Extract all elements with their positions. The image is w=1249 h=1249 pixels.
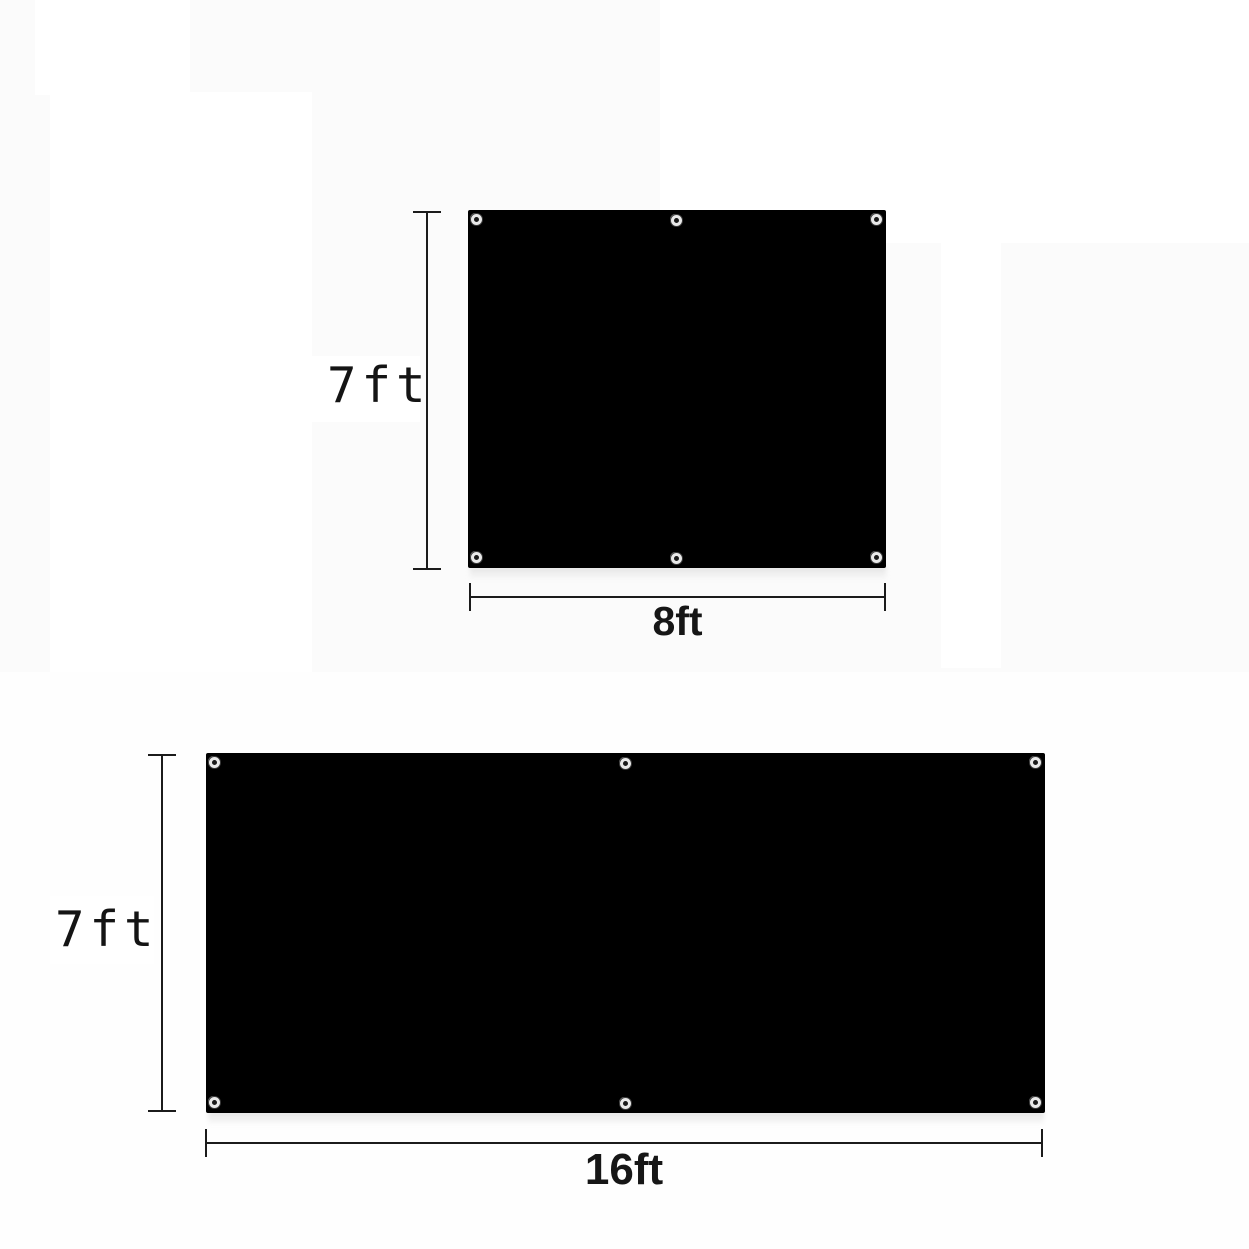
grommet-icon [1030, 757, 1041, 768]
grommet-icon [209, 757, 220, 768]
dimension-cap [413, 568, 441, 570]
grommet-icon [871, 552, 882, 563]
background-patch [50, 92, 312, 672]
grommet-icon [871, 214, 882, 225]
background-patch [35, 0, 190, 95]
dimension-line [161, 754, 163, 1112]
dimension-line [205, 1142, 1043, 1144]
product-dimension-diagram: 7ft 8ft 7ft 16ft [0, 0, 1249, 1249]
dimension-cap [148, 1110, 176, 1112]
grommet-icon [471, 214, 482, 225]
tarp-shadow [208, 1111, 1044, 1125]
width-label-8x7: 8ft [469, 599, 886, 643]
background-patch [660, 0, 1249, 243]
grommet-icon [1030, 1097, 1041, 1108]
background-patch [941, 238, 1001, 668]
tarp-shadow [470, 566, 886, 580]
grommet-icon [671, 553, 682, 564]
grommet-icon [209, 1097, 220, 1108]
grommet-icon [671, 215, 682, 226]
grommet-icon [620, 758, 631, 769]
grommet-icon [471, 552, 482, 563]
width-label-16x7: 16ft [205, 1146, 1043, 1193]
grommet-icon [620, 1098, 631, 1109]
height-label-8x7: 7ft [327, 360, 431, 412]
height-label-16x7: 7ft [55, 904, 159, 956]
tarp-rect-8x7 [468, 210, 886, 568]
tarp-rect-16x7 [206, 753, 1045, 1113]
